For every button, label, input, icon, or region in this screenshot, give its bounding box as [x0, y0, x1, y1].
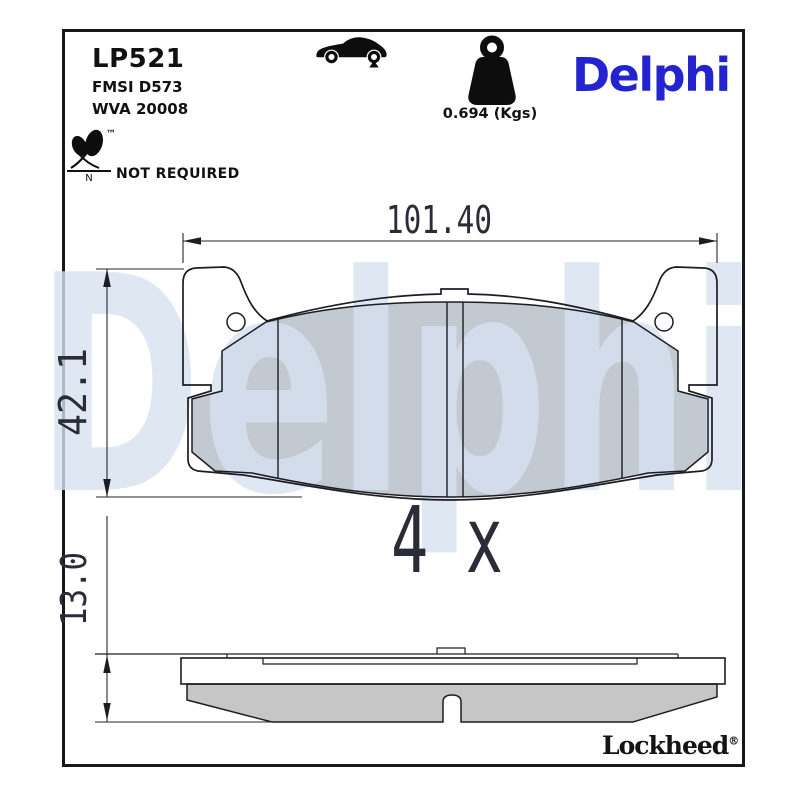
- wva-code: WVA 20008: [92, 100, 188, 118]
- car-front-wheel: [327, 52, 336, 61]
- weight-value: 0.694 (Kgs): [427, 106, 553, 122]
- leaf-underline: [67, 170, 111, 172]
- delphi-logo: Delphi: [572, 48, 730, 102]
- registered-mark: ®: [728, 735, 738, 748]
- lockheed-logo-text: Lockheed: [602, 731, 728, 760]
- side-view-shim-inner-line: [263, 658, 637, 664]
- technical-drawing: Delphi 101.40 42.1: [0, 0, 800, 800]
- dim-height-text: 42.1: [51, 348, 95, 436]
- dim-thickness-text: 13.0: [54, 552, 95, 626]
- not-required-label: NOT REQUIRED: [116, 166, 240, 182]
- side-view-shim-tab: [437, 648, 465, 654]
- lockheed-logo: Lockheed®: [602, 731, 738, 760]
- quantity-label: 4 x: [391, 487, 503, 594]
- dim-width-text: 101.40: [386, 198, 492, 242]
- car-rear-axle-icon: [314, 36, 392, 70]
- dim-thickness-arrow-top: [103, 655, 110, 673]
- side-view-friction-fill: [187, 684, 717, 722]
- fmsi-code: FMSI D573: [92, 78, 183, 96]
- weight-icon: [459, 35, 525, 109]
- leaf-n-label: N: [67, 173, 111, 184]
- part-number: LP521: [92, 44, 184, 74]
- dim-thickness-arrow-bottom: [103, 703, 110, 721]
- trademark-mark: ™: [106, 129, 116, 140]
- car-rear-wheel: [369, 52, 378, 61]
